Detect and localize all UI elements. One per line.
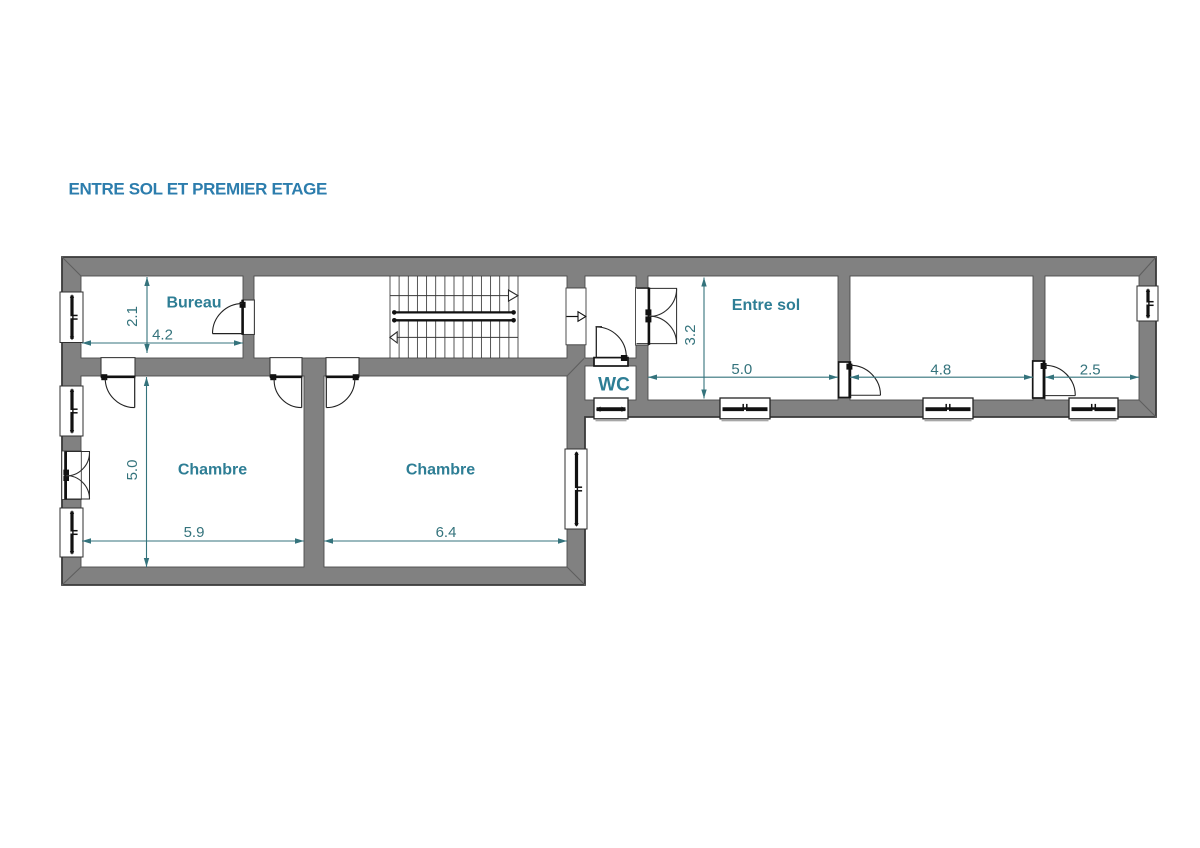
svg-text:4.2: 4.2 bbox=[152, 327, 173, 344]
svg-text:Entre sol: Entre sol bbox=[732, 297, 800, 314]
svg-text:Bureau: Bureau bbox=[166, 295, 221, 312]
svg-text:2.5: 2.5 bbox=[1080, 362, 1101, 379]
svg-text:5.9: 5.9 bbox=[184, 524, 205, 541]
svg-text:5.0: 5.0 bbox=[731, 361, 752, 378]
svg-text:ENTRE SOL ET PREMIER ETAGE: ENTRE SOL ET PREMIER ETAGE bbox=[69, 180, 328, 199]
svg-text:6.4: 6.4 bbox=[436, 524, 457, 541]
svg-text:WC: WC bbox=[598, 375, 630, 396]
svg-text:2.1: 2.1 bbox=[124, 306, 141, 327]
svg-text:3.2: 3.2 bbox=[682, 325, 699, 346]
svg-text:5.0: 5.0 bbox=[124, 460, 141, 481]
svg-text:4.8: 4.8 bbox=[930, 362, 951, 379]
svg-text:Chambre: Chambre bbox=[178, 462, 247, 479]
svg-text:Chambre: Chambre bbox=[406, 462, 475, 479]
